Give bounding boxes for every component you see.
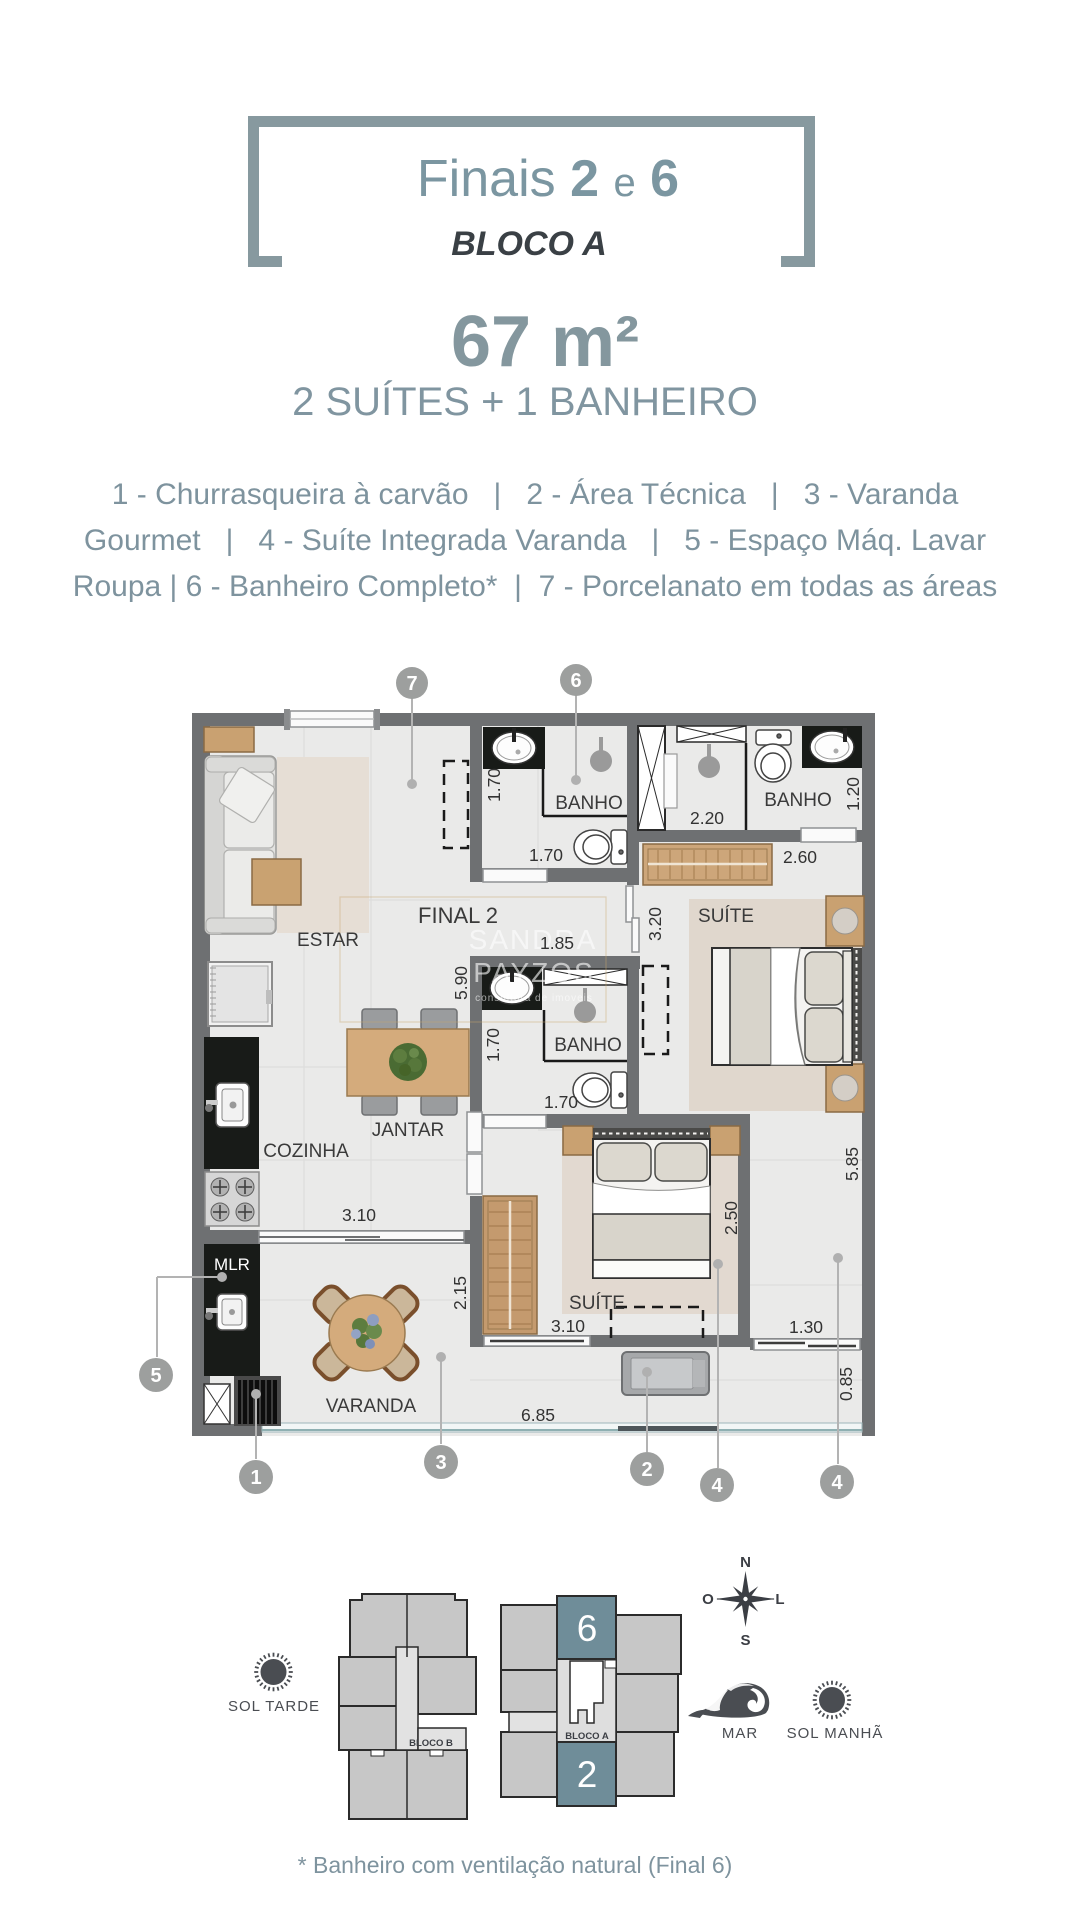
svg-text:consultora de imoveis: consultora de imoveis bbox=[475, 993, 593, 1004]
svg-text:3: 3 bbox=[435, 1452, 446, 1474]
svg-text:2.50: 2.50 bbox=[721, 1201, 741, 1235]
svg-text:SOL MANHÃ: SOL MANHÃ bbox=[787, 1725, 884, 1742]
svg-text:Roupa | 6 - Banheiro Completo*: Roupa | 6 - Banheiro Completo* | 7 - Por… bbox=[73, 570, 997, 603]
svg-text:BANHO: BANHO bbox=[555, 793, 623, 814]
svg-text:67 m²: 67 m² bbox=[451, 302, 639, 382]
svg-text:1: 1 bbox=[250, 1467, 261, 1489]
svg-text:3.10: 3.10 bbox=[342, 1205, 376, 1225]
svg-text:SOL TARDE: SOL TARDE bbox=[228, 1698, 320, 1715]
svg-text:SUÍTE: SUÍTE bbox=[698, 906, 754, 927]
svg-text:5.90: 5.90 bbox=[451, 966, 471, 1000]
svg-text:PAYZOS: PAYZOS bbox=[473, 957, 594, 988]
svg-text:1.30: 1.30 bbox=[789, 1317, 823, 1337]
svg-text:SANDRA: SANDRA bbox=[469, 924, 598, 955]
svg-text:1.20: 1.20 bbox=[843, 777, 863, 811]
svg-text:L: L bbox=[775, 1591, 784, 1608]
svg-text:2: 2 bbox=[641, 1459, 652, 1481]
svg-text:BLOCO A: BLOCO A bbox=[451, 225, 607, 263]
svg-text:6.85: 6.85 bbox=[521, 1405, 555, 1425]
svg-text:COZINHA: COZINHA bbox=[263, 1141, 349, 1162]
svg-text:ESTAR: ESTAR bbox=[297, 930, 359, 951]
svg-text:6: 6 bbox=[570, 670, 581, 692]
svg-text:3.20: 3.20 bbox=[645, 907, 665, 941]
svg-text:MLR: MLR bbox=[214, 1255, 250, 1274]
svg-text:Gourmet | 4 - Suíte Integr: Gourmet | 4 - Suíte Integrada Varanda | … bbox=[84, 524, 986, 557]
svg-text:5.85: 5.85 bbox=[842, 1147, 862, 1181]
svg-text:2: 2 bbox=[577, 1754, 598, 1795]
svg-text:O: O bbox=[702, 1591, 714, 1608]
svg-text:4: 4 bbox=[711, 1475, 723, 1497]
svg-text:2 SUÍTES + 1 BANHEIRO: 2 SUÍTES + 1 BANHEIRO bbox=[292, 379, 758, 424]
svg-text:7: 7 bbox=[406, 673, 417, 695]
svg-text:2.60: 2.60 bbox=[783, 847, 817, 867]
svg-text:3.10: 3.10 bbox=[551, 1316, 585, 1336]
svg-text:6: 6 bbox=[577, 1608, 598, 1649]
svg-text:4: 4 bbox=[831, 1472, 843, 1494]
svg-text:N: N bbox=[740, 1554, 751, 1571]
svg-text:1.70: 1.70 bbox=[529, 845, 563, 865]
svg-text:BLOCO A: BLOCO A bbox=[565, 1731, 609, 1742]
svg-text:FINAL 2: FINAL 2 bbox=[418, 903, 498, 928]
svg-text:BANHO: BANHO bbox=[554, 1035, 622, 1056]
svg-text:S: S bbox=[740, 1632, 750, 1649]
svg-text:1.70: 1.70 bbox=[484, 768, 504, 802]
svg-text:2.20: 2.20 bbox=[690, 808, 724, 828]
svg-text:BANHO: BANHO bbox=[764, 790, 832, 811]
svg-text:1.85: 1.85 bbox=[540, 933, 574, 953]
svg-text:1.70: 1.70 bbox=[483, 1028, 503, 1062]
svg-text:Finais 2 e 6: Finais 2 e 6 bbox=[417, 150, 679, 208]
svg-text:1 - Churrasqueira à carvão |: 1 - Churrasqueira à carvão | 2 - Área Té… bbox=[112, 478, 959, 511]
svg-text:2.15: 2.15 bbox=[450, 1276, 470, 1310]
svg-text:1.70: 1.70 bbox=[544, 1092, 578, 1112]
svg-text:VARANDA: VARANDA bbox=[326, 1396, 417, 1417]
svg-text:* Banheiro com ventilação natu: * Banheiro com ventilação natural (Final… bbox=[298, 1852, 733, 1878]
svg-text:SUÍTE: SUÍTE bbox=[569, 1293, 625, 1314]
svg-text:JANTAR: JANTAR bbox=[372, 1120, 444, 1141]
svg-text:5: 5 bbox=[150, 1365, 161, 1387]
svg-text:MAR: MAR bbox=[722, 1725, 758, 1742]
svg-text:BLOCO B: BLOCO B bbox=[409, 1738, 453, 1749]
